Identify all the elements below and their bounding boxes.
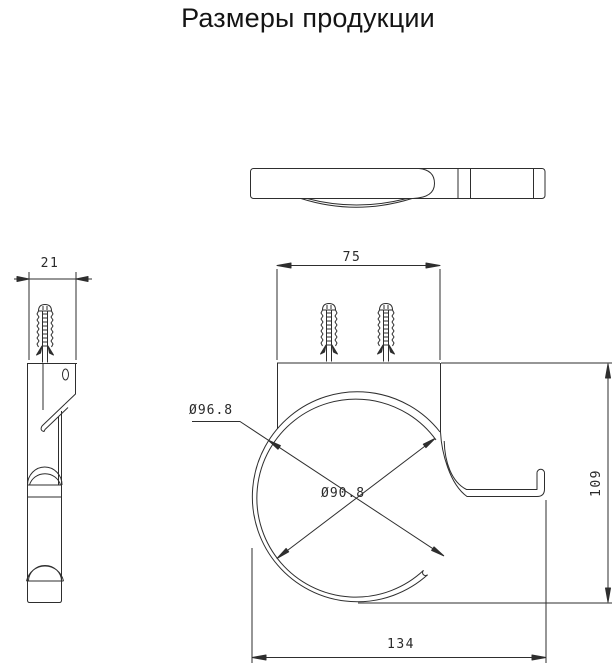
dim-label-side-width: 21 bbox=[30, 256, 70, 271]
side-profile bbox=[27, 364, 78, 603]
dim-label-overall-width: 134 bbox=[381, 637, 421, 652]
front-view bbox=[192, 263, 612, 663]
dim-21-lines bbox=[14, 272, 92, 360]
hook bbox=[441, 363, 545, 497]
dim-label-height: 109 bbox=[577, 463, 616, 503]
holder-outline bbox=[252, 363, 544, 602]
dim-label-outer-diameter: Ø96.8 bbox=[189, 403, 233, 418]
mounting-hole bbox=[63, 369, 69, 380]
wall-anchor-right bbox=[378, 304, 395, 362]
dim-label-screw-spacing: 75 bbox=[332, 250, 372, 265]
wall-anchor-left bbox=[321, 304, 338, 362]
dia-96-8-lines bbox=[192, 422, 444, 556]
technical-drawing bbox=[0, 0, 616, 672]
drawing-page: Размеры продукции bbox=[0, 0, 616, 672]
dim-75-lines bbox=[277, 263, 440, 360]
side-view bbox=[14, 272, 92, 603]
dim-label-inner-diameter: Ø90.8 bbox=[321, 486, 365, 501]
top-view bbox=[251, 169, 546, 208]
wall-anchor-side bbox=[37, 305, 54, 363]
